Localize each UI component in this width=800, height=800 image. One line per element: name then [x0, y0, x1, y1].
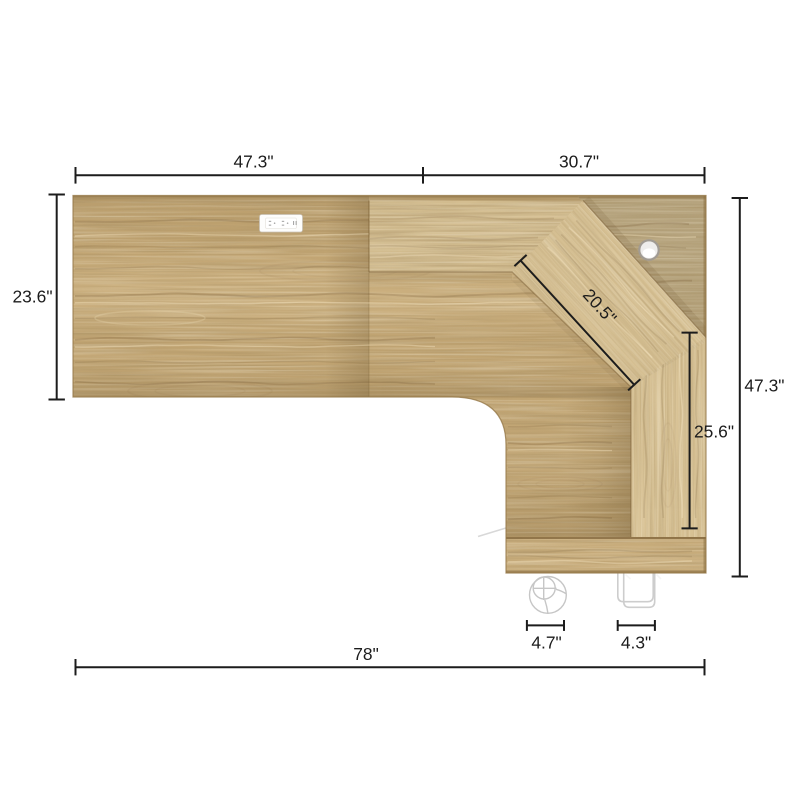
svg-text:47.3": 47.3" — [744, 375, 784, 395]
svg-text:78": 78" — [353, 644, 379, 664]
svg-text:47.3": 47.3" — [233, 151, 273, 171]
svg-text:23.6": 23.6" — [12, 286, 52, 306]
svg-text:4.3": 4.3" — [621, 633, 651, 653]
svg-text:4.7": 4.7" — [531, 633, 561, 653]
svg-text:25.6": 25.6" — [694, 422, 734, 442]
svg-text:30.7": 30.7" — [559, 151, 599, 171]
